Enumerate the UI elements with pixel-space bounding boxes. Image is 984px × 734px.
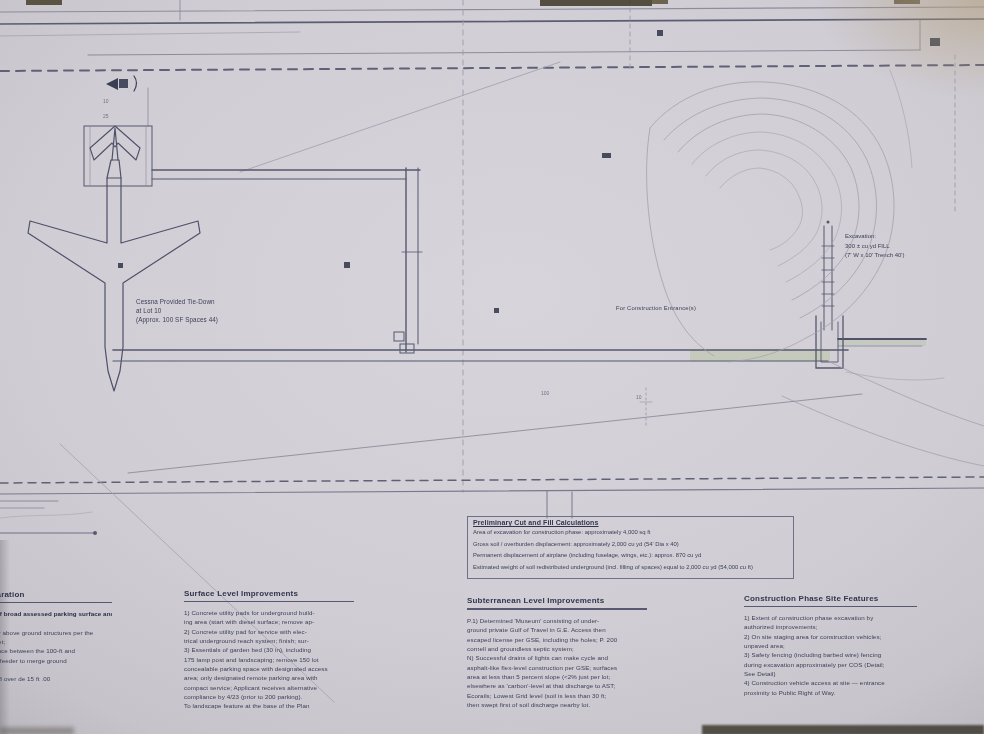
cut-fill-line: Permanent displacement of airplane (incl… <box>473 550 788 562</box>
cut-fill-line: Gross soil / overburden displacement: ap… <box>473 539 788 551</box>
note-line: Datum: +03 48 over de 15 ft .00 <box>0 674 112 683</box>
note-line: unpaved area; <box>744 641 917 650</box>
note-line: cornell and groundless septic system; <box>467 644 647 653</box>
dimension-label: 10 <box>103 98 109 104</box>
note-line: asphalt-like flex-level construction per… <box>467 663 647 672</box>
callout-leaders <box>547 491 572 518</box>
airplane-label-line: at Lot 10 <box>136 307 256 316</box>
note-line: area; only designated remote parking are… <box>184 673 354 682</box>
note-line: 1) Concrete utility pads for underground… <box>184 608 354 617</box>
note-line: authorized improvements; <box>744 622 917 631</box>
note-line: 4) As-needed feeder to merge ground <box>0 656 112 665</box>
lower-property-line <box>0 477 984 483</box>
note-line: 2) On site staging area for construction… <box>744 632 917 641</box>
note-line: compliance by 4/23 (prior to 200 parking… <box>184 692 354 701</box>
note-line: grading; <box>0 618 112 627</box>
note-line: 3) Essentials of garden bed (30 in), inc… <box>184 645 354 654</box>
note-line: erosion blanket; <box>0 637 112 646</box>
photo-dark-edge <box>702 725 984 734</box>
note-line: 3) Safety fencing (including barbed wire… <box>744 650 917 659</box>
note-line: 1) Removal of broad assessed parking sur… <box>0 609 112 618</box>
note-line: 4) Construction vehicle access at site —… <box>744 678 917 687</box>
note-line: 3) Sight distance between the 100-ft and <box>0 646 112 655</box>
cut-fill-lines: Area of excavation for construction phas… <box>473 527 788 573</box>
note-line: surfaces; <box>0 665 112 674</box>
note-line: escaped license per GSE, including the h… <box>467 635 647 644</box>
airplane-label: Cessna Provided Tie-Downat Lot 10(Approx… <box>136 298 256 324</box>
note-line: during excavation approximately per COS … <box>744 660 917 669</box>
notes-column-construction-features: Construction Phase Site Features 1) Exte… <box>744 594 917 697</box>
excavation-note: Excavation:300 ± cu yd FILL(7' W x 10' T… <box>845 232 937 261</box>
note-line: elsewhere as 'carbon'-level at that disc… <box>467 681 647 690</box>
entrance-note: For Construction Entrance(s) <box>616 305 766 311</box>
notes-column-site-preparation: Site Preparation 1) Removal of broad ass… <box>0 590 112 684</box>
diagonal-grade-line <box>128 394 862 473</box>
note-line: concealable parking space with designate… <box>184 664 354 673</box>
note-line: ground private Gulf of Travel in G.E. Ac… <box>467 625 647 634</box>
column-body: P.1) Determined 'Museum' consisting of u… <box>467 616 647 709</box>
note-line: trical underground reach system; finish;… <box>184 636 354 645</box>
dimension-label: 100 <box>541 390 549 396</box>
drainage-curves <box>782 362 984 466</box>
note-line: N) Successful drains of lights can make … <box>467 653 647 662</box>
photo-dark-edge <box>0 727 74 734</box>
notes-column-subterranean-improvements: Subterranean Level Improvements P.1) Det… <box>467 596 647 709</box>
note-line: proximity to Public Right of Way. <box>744 688 917 697</box>
note-line: 175 lamp post and landscaping; remove 15… <box>184 655 354 664</box>
note-line: See Detail) <box>744 669 917 678</box>
column-heading: Site Preparation <box>0 590 112 603</box>
airplane-plan-icon <box>28 126 200 391</box>
column-body: 1) Removal of broad assessed parking sur… <box>0 609 112 684</box>
column-heading: Subterranean Level Improvements <box>467 596 647 610</box>
dimension-label: 10 <box>636 394 642 400</box>
dimension-label: 25 <box>103 113 109 119</box>
cut-fill-title: Preliminary Cut and Fill Calculations <box>473 519 788 526</box>
note-line: Ecorails; Lowest Grid level (soil is les… <box>467 691 647 700</box>
airplane-label-line: (Approx. 100 SF Spaces 44) <box>136 316 256 325</box>
note-line: then swept first of soil discharge nearb… <box>467 700 647 709</box>
border-lines <box>0 7 984 71</box>
note-line: To landscape feature at the base of the … <box>184 701 354 710</box>
cut-fill-line: Area of excavation for construction phas… <box>473 527 788 539</box>
excavation-note-line: Excavation: <box>845 232 937 242</box>
note-line: compact service; Applicant receives alte… <box>184 683 354 692</box>
note-line: 2) Clearing for above ground structures … <box>0 628 112 637</box>
note-line: ing area (start with diesel surface; rem… <box>184 617 354 626</box>
contour-lines <box>647 70 912 362</box>
property-line <box>0 65 984 71</box>
column-body: 1) Extent of construction phase excavati… <box>744 613 917 697</box>
note-line: P.1) Determined 'Museum' consisting of u… <box>467 616 647 625</box>
column-body: 1) Concrete utility pads for underground… <box>184 608 354 711</box>
edge-smudges <box>26 0 920 6</box>
excavation-note-line: 300 ± cu yd FILL <box>845 242 937 252</box>
highlighted-segment <box>690 350 830 361</box>
excavation-note-line: (7' W x 10' Trench 40') <box>845 251 937 261</box>
note-line: 1) Extent of construction phase excavati… <box>744 613 917 622</box>
airplane-label-line: Cessna Provided Tie-Down <box>136 298 256 307</box>
column-heading: Construction Phase Site Features <box>744 594 917 607</box>
blueprint-photo: Cessna Provided Tie-Downat Lot 10(Approx… <box>0 0 984 734</box>
notes-column-surface-improvements: Surface Level Improvements 1) Concrete u… <box>184 589 354 711</box>
note-line: area at less than 5 percent slope (<2% j… <box>467 672 647 681</box>
cut-fill-calculations-box: Preliminary Cut and Fill Calculations Ar… <box>467 516 794 579</box>
survey-marker-icon <box>106 76 137 91</box>
column-heading: Surface Level Improvements <box>184 589 354 602</box>
apron-outline <box>113 168 926 361</box>
note-line: 2) Concrete utility pad for service with… <box>184 627 354 636</box>
cut-fill-line: Estimated weight of soil redistributed u… <box>473 562 788 574</box>
